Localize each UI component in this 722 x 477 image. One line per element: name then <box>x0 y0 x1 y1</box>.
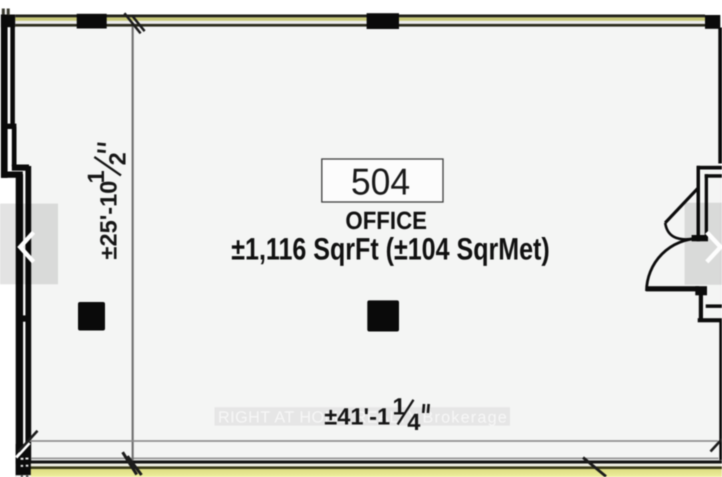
svg-text:±25'-10: ±25'-10 <box>97 181 123 260</box>
svg-text:504: 504 <box>351 161 410 203</box>
svg-text:2: 2 <box>106 152 132 165</box>
svg-text:±41'-1: ±41'-1 <box>324 405 390 431</box>
svg-text:Brokerage: Brokerage <box>423 408 509 426</box>
svg-text:±1,116 SqrFt (±104 SqrMet): ±1,116 SqrFt (±104 SqrMet) <box>231 231 549 266</box>
svg-text:1: 1 <box>84 170 110 183</box>
svg-text:4: 4 <box>407 410 420 436</box>
